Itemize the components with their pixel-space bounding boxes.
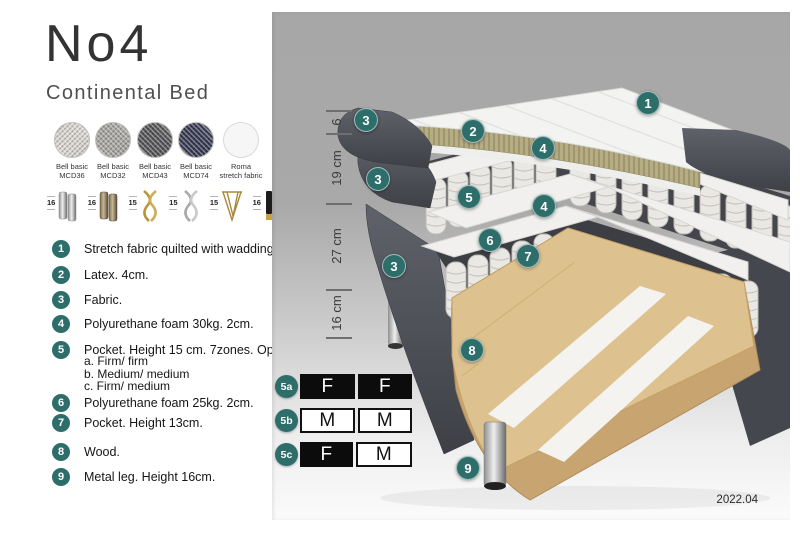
chrome-cylinder-leg-icon (57, 190, 79, 222)
bed-callout: 3 (366, 167, 390, 191)
bed-callout: 8 (460, 338, 484, 362)
leg-options: 16 16 15 15 15 (47, 190, 283, 230)
fabric-name: Bell basic (56, 162, 88, 171)
fabric-swatch-circle (95, 122, 131, 158)
product-title: No4 (45, 18, 152, 70)
measure-label-leg: 16 cm (330, 281, 344, 345)
leg-height: 15 (210, 199, 218, 207)
spec-text: Polyurethane foam 30kg. 2cm. (84, 317, 254, 331)
firmness-cell: F (300, 442, 353, 467)
firmness-cell: F (358, 374, 413, 399)
firmness-row-badge: 5b (275, 409, 298, 432)
fabric-swatch-circle (178, 122, 214, 158)
firmness-bar-5b: M M (300, 408, 412, 433)
leg-height: 16 (253, 199, 261, 207)
product-sheet: No4 Continental Bed Bell basicMCD36 Bell… (0, 0, 800, 533)
leg-option: 16 (47, 190, 79, 230)
silver-twist-leg-icon (180, 190, 202, 222)
fabric-swatch: Bell basicMCD43 (132, 122, 178, 180)
fabric-name: Bell basic (180, 162, 212, 171)
fabric-swatch-circle (223, 122, 259, 158)
bed-callout: 4 (531, 136, 555, 160)
spec-text: Metal leg. Height 16cm. (84, 470, 215, 484)
spec-item: 4 Polyurethane foam 30kg. 2cm. (52, 315, 254, 333)
measure-label-lower-box: 27 cm (330, 214, 344, 278)
firmness-cell: M (358, 408, 413, 433)
bed-callout: 9 (456, 456, 480, 480)
firmness-bar-5c: F M (300, 442, 412, 467)
leg-height: 16 (47, 199, 55, 207)
list-number-badge: 2 (52, 266, 70, 284)
spec-text: Wood. (84, 445, 120, 459)
spec-text: Polyurethane foam 25kg. 2cm. (84, 396, 254, 410)
fabric-code: MCD74 (183, 171, 208, 180)
measure-tick (326, 203, 352, 205)
pocket-option: c. Firm/ medium (84, 380, 189, 393)
fabric-swatch-circle (54, 122, 90, 158)
bed-callout: 5 (457, 185, 481, 209)
product-subtitle: Continental Bed (46, 82, 209, 105)
list-number-badge: 3 (52, 291, 70, 309)
gold-hairpin-leg-icon (220, 190, 244, 222)
pocket-options: a. Firm/ firm b. Medium/ medium c. Firm/… (84, 355, 189, 393)
list-number-badge: 7 (52, 414, 70, 432)
fabric-name: Roma (231, 162, 251, 171)
spec-item: 6 Polyurethane foam 25kg. 2cm. (52, 394, 254, 412)
fabric-swatch: Bell basicMCD74 (173, 122, 219, 180)
list-number-badge: 6 (52, 394, 70, 412)
leg-height: 16 (88, 199, 96, 207)
leg-option: 16 (88, 190, 120, 230)
spec-item: 3 Fabric. (52, 291, 122, 309)
fabric-swatch-circle (137, 122, 173, 158)
spec-item: 7 Pocket. Height 13cm. (52, 414, 203, 432)
fabric-code: MCD32 (100, 171, 125, 180)
bronze-cylinder-leg-icon (98, 190, 120, 222)
bed-callout: 3 (382, 254, 406, 278)
spec-item: 1 Stretch fabric quilted with wadding. (52, 240, 277, 258)
bed-callout: 3 (354, 108, 378, 132)
firmness-cell: M (300, 408, 355, 433)
fabric-name: Bell basic (97, 162, 129, 171)
list-number-badge: 9 (52, 468, 70, 486)
firmness-cell: F (300, 374, 355, 399)
fabric-swatch: Bell basicMCD32 (90, 122, 136, 180)
bed-callout: 6 (478, 228, 502, 252)
firmness-bar-5a: F F (300, 374, 412, 399)
pocket-option: a. Firm/ firm (84, 355, 189, 368)
leg-option: 15 (128, 190, 160, 230)
spec-item: 2 Latex. 4cm. (52, 266, 149, 284)
firmness-row-badge: 5a (275, 375, 298, 398)
leg-height: 15 (128, 199, 136, 207)
bed-callout: 7 (516, 244, 540, 268)
leg-height: 15 (169, 199, 177, 207)
list-number-badge: 4 (52, 315, 70, 333)
spec-text: Fabric. (84, 293, 122, 307)
fabric-swatch: Romastretch fabric (218, 122, 264, 180)
spec-text: Stretch fabric quilted with wadding. (84, 242, 277, 256)
measure-label-upper-mattress: 19 cm (330, 136, 344, 200)
fabric-code: MCD36 (59, 171, 84, 180)
spec-text: Latex. 4cm. (84, 268, 149, 282)
spec-item: 9 Metal leg. Height 16cm. (52, 468, 215, 486)
fabric-code: stretch fabric (220, 171, 263, 180)
spec-item: 8 Wood. (52, 443, 120, 461)
bed-callout: 4 (532, 194, 556, 218)
version-label: 2022.04 (688, 494, 758, 506)
bed-callout: 2 (461, 119, 485, 143)
list-number-badge: 1 (52, 240, 70, 258)
fabric-name: Bell basic (139, 162, 171, 171)
spec-text: Pocket. Height 13cm. (84, 416, 203, 430)
fabric-swatch: Bell basicMCD36 (49, 122, 95, 180)
firmness-cell: M (356, 442, 413, 467)
fabric-code: MCD43 (142, 171, 167, 180)
leg-option: 15 (210, 190, 244, 230)
list-number-badge: 5 (52, 341, 70, 359)
gold-twist-leg-icon (139, 190, 161, 222)
leg-option: 15 (169, 190, 201, 230)
list-number-badge: 8 (52, 443, 70, 461)
firmness-row-badge: 5c (275, 443, 298, 466)
bed-callout: 1 (636, 91, 660, 115)
